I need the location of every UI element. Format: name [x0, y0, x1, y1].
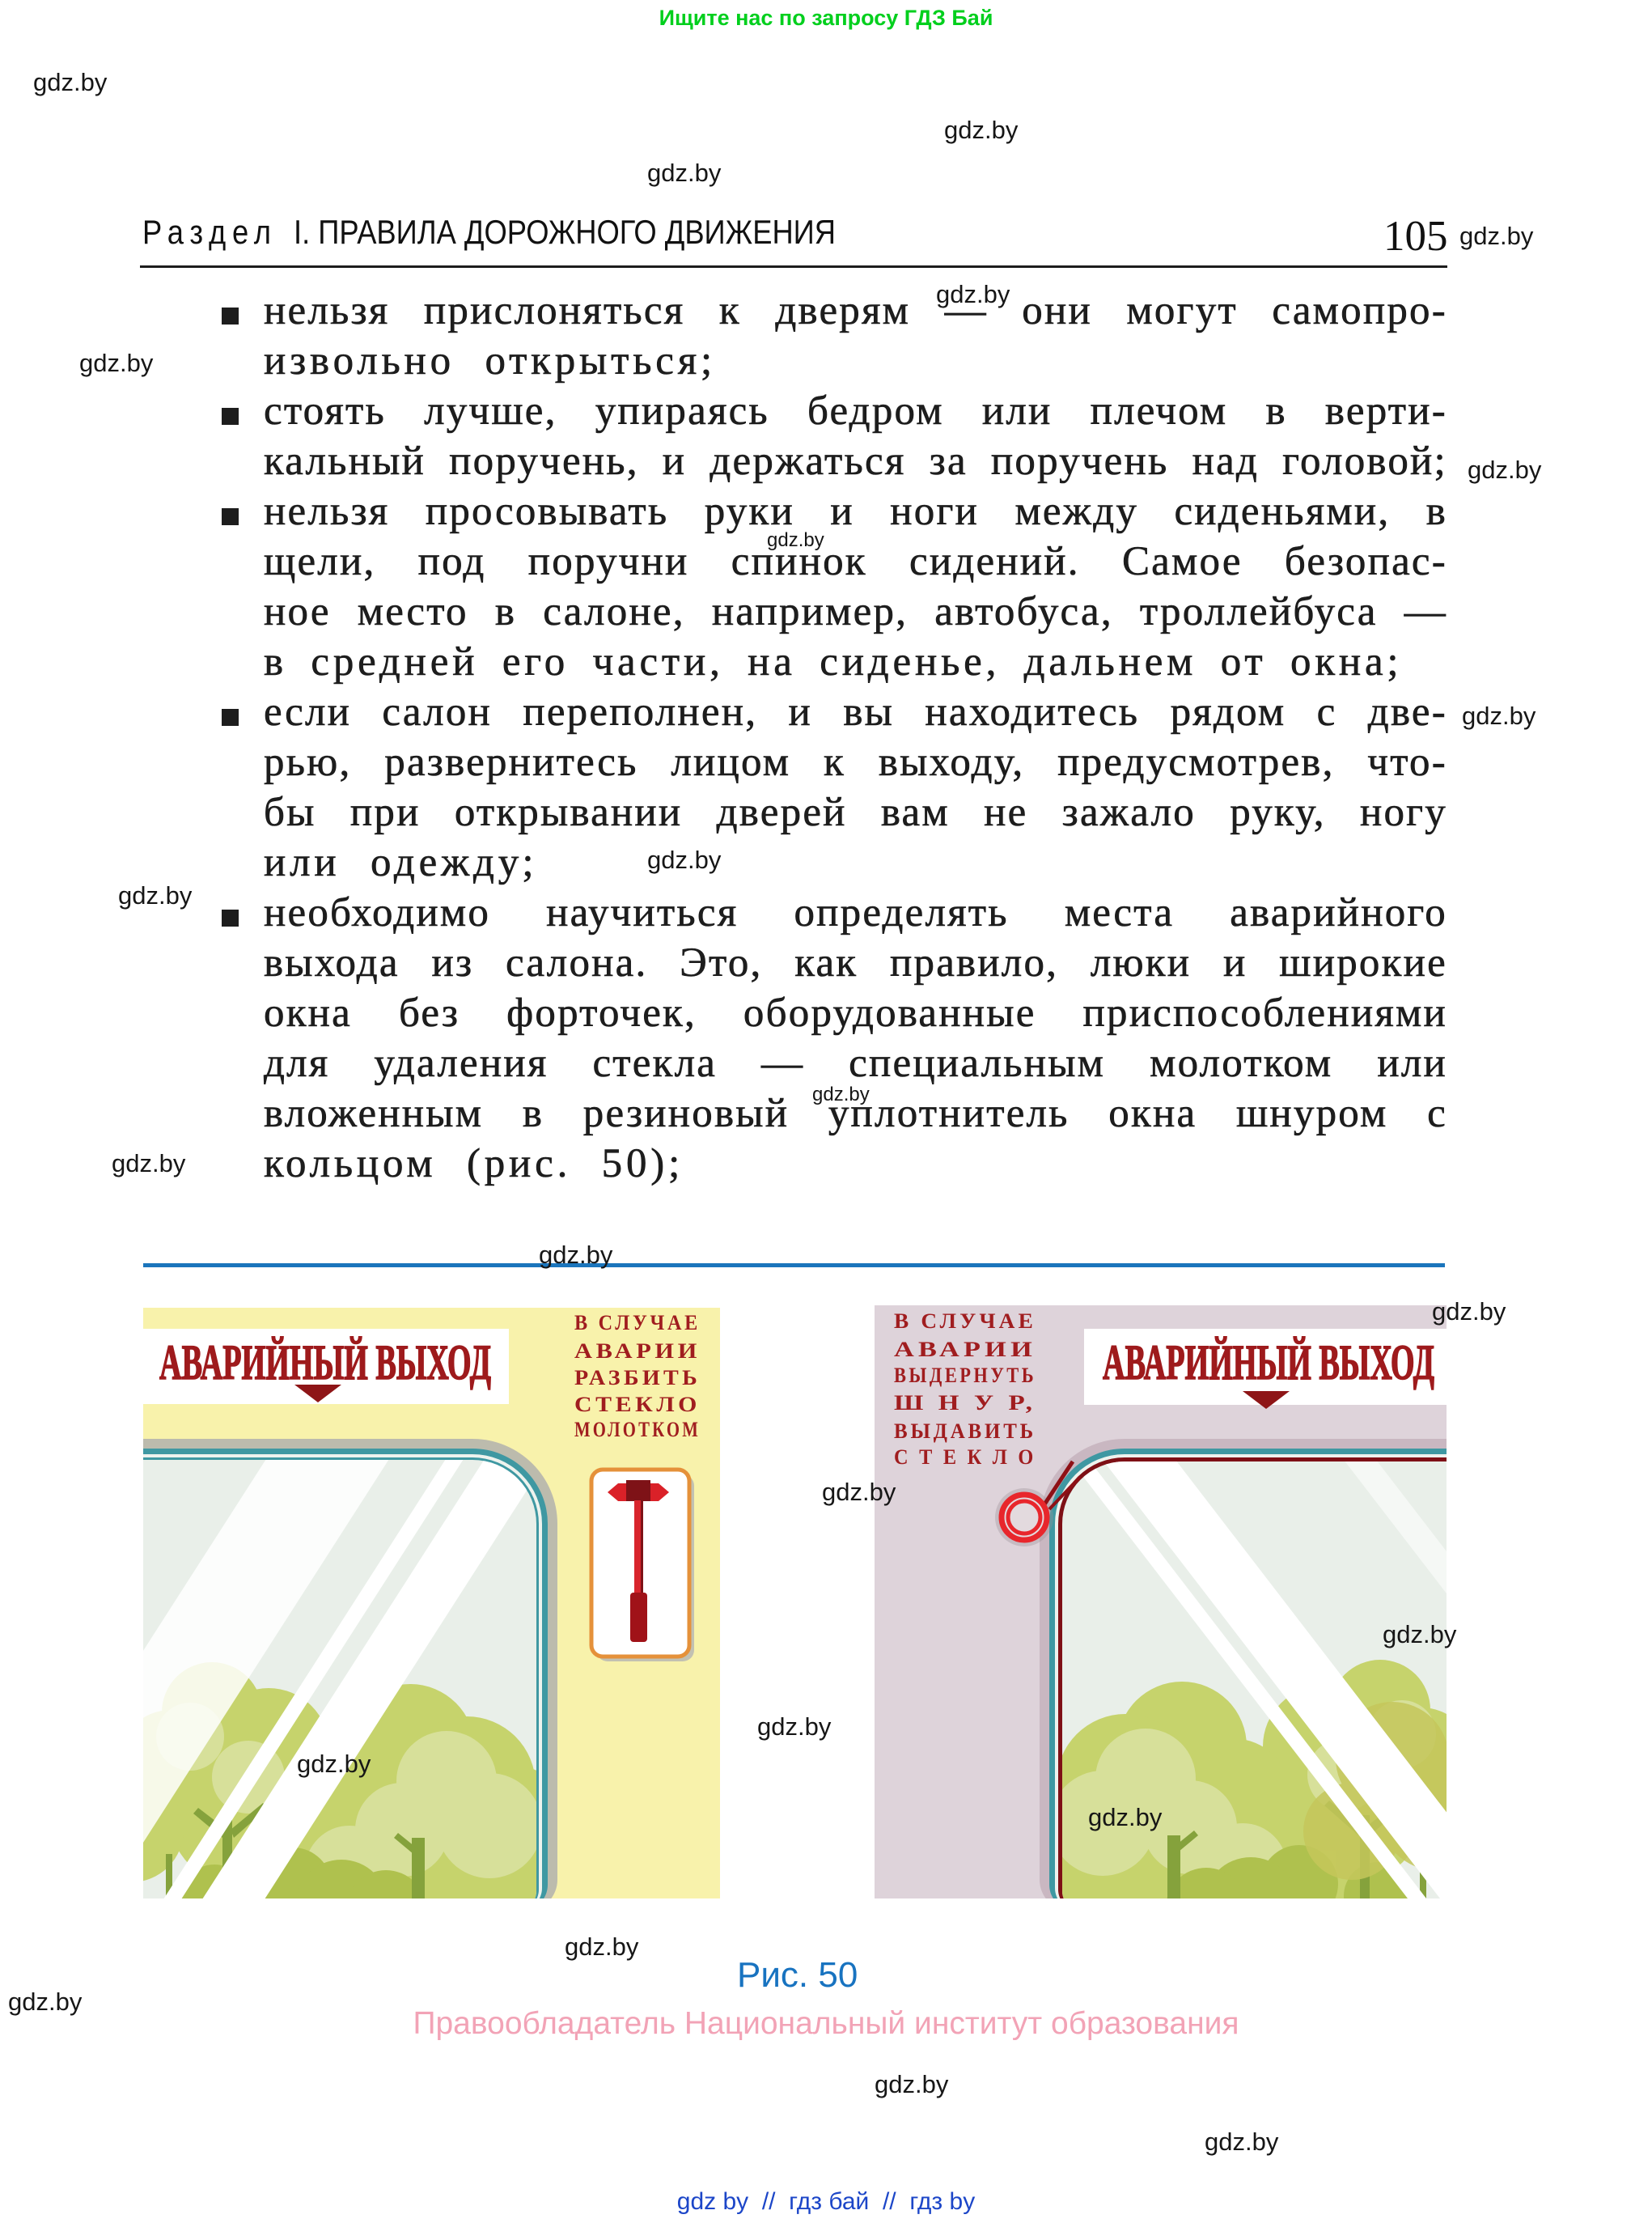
- svg-text:ВЫДЕРНУТЬ: ВЫДЕРНУТЬ: [894, 1364, 1036, 1387]
- svg-text:В СЛУЧАЕ: В СЛУЧАЕ: [894, 1309, 1036, 1333]
- svg-text:ВЫДАВИТЬ: ВЫДАВИТЬ: [894, 1419, 1036, 1443]
- svg-text:МОЛОТКОМ: МОЛОТКОМ: [574, 1418, 701, 1441]
- svg-text:В СЛУЧАЕ: В СЛУЧАЕ: [574, 1311, 701, 1334]
- svg-text:СТЕКЛО: СТЕКЛО: [574, 1393, 701, 1416]
- svg-text:РАЗБИТЬ: РАЗБИТЬ: [574, 1366, 701, 1389]
- svg-text:С Т Е К Л О: С Т Е К Л О: [894, 1445, 1036, 1469]
- svg-text:АВАРИИ: АВАРИИ: [574, 1339, 701, 1363]
- svg-text:Ш Н У Р,: Ш Н У Р,: [894, 1391, 1036, 1415]
- svg-text:АВАРИЙНЫЙ ВЫХОД: АВАРИЙНЫЙ ВЫХОД: [159, 1336, 491, 1390]
- svg-text:АВАРИИ: АВАРИИ: [894, 1338, 1036, 1361]
- svg-text:АВАРИЙНЫЙ ВЫХОД: АВАРИЙНЫЙ ВЫХОД: [1103, 1336, 1434, 1390]
